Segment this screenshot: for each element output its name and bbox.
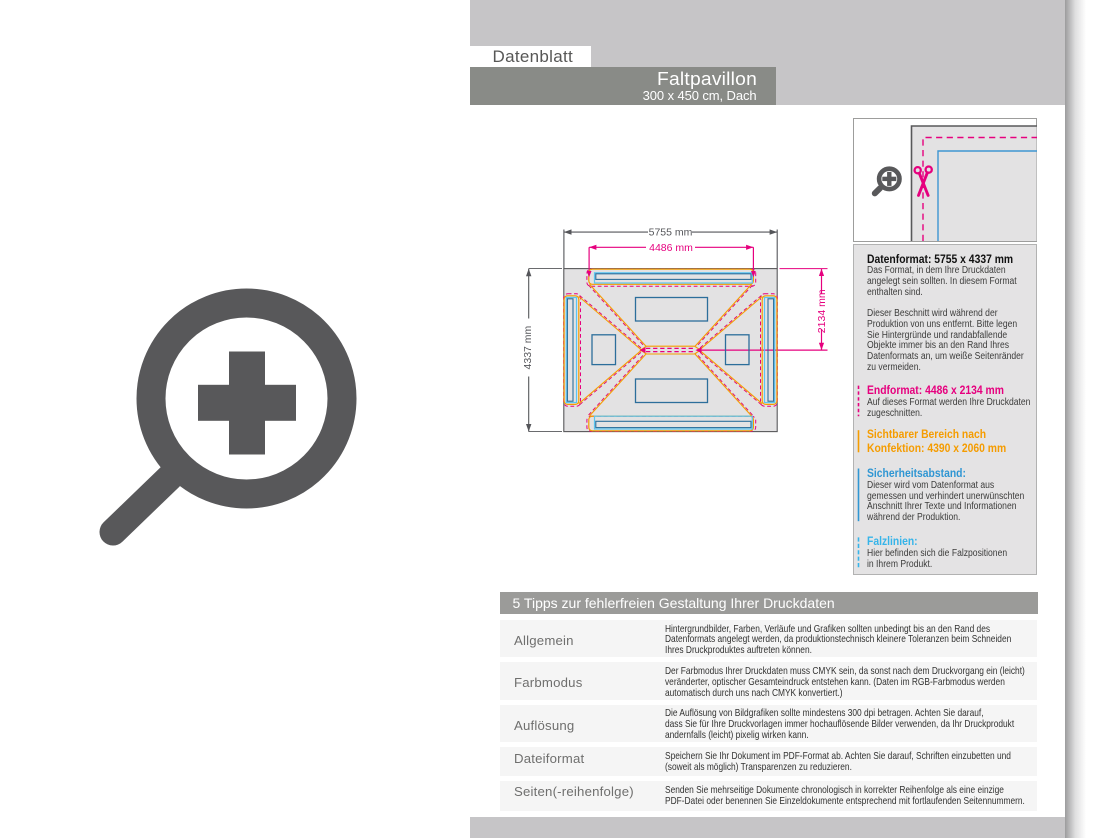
svg-text:5755 mm: 5755 mm <box>649 227 693 239</box>
svg-text:4337 mm: 4337 mm <box>522 325 534 369</box>
svg-text:4486 mm: 4486 mm <box>649 242 693 254</box>
svg-text:2134 mm: 2134 mm <box>816 289 828 333</box>
